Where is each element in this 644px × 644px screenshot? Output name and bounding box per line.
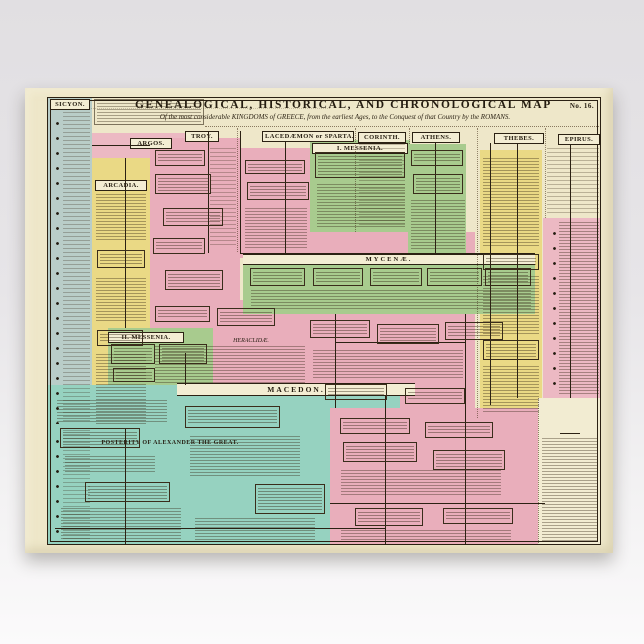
entry-box [153, 238, 205, 254]
macedon-texture [61, 508, 181, 540]
entry-box [185, 406, 280, 428]
arcadia-texture [96, 194, 146, 242]
epochas-paragraph-texture [542, 438, 598, 541]
epochas-divider [560, 433, 580, 434]
column-divider [409, 128, 410, 144]
entry-box [411, 150, 463, 166]
center-texture [313, 350, 463, 378]
title-divider [205, 126, 599, 127]
epirus-texture [559, 222, 599, 394]
entry-box [97, 250, 145, 268]
section-header-troy: TROY. [185, 131, 219, 142]
connector-line [92, 145, 150, 146]
section-header-sicyon: SICYON. [50, 99, 90, 110]
thebes-texture [483, 276, 539, 334]
entry-box [370, 268, 422, 286]
section-header-thebes: THEBES. [494, 133, 544, 144]
macedon-texture [57, 400, 167, 422]
entry-box [427, 268, 482, 286]
entry-box [425, 422, 493, 438]
sicyon-timeline-texture [63, 112, 90, 424]
entry-box [159, 344, 207, 364]
entry-box [340, 418, 410, 434]
label-heraclidae: HERACLIDÆ. [221, 338, 281, 345]
entry-box [155, 306, 210, 322]
section-header-argos: ARGOS. [130, 138, 172, 149]
macedon-texture [65, 456, 155, 474]
sicyon-timeline-dots [50, 112, 62, 424]
entry-box [405, 388, 465, 404]
macedon-texture [190, 436, 300, 476]
antique-chart-poster: GENEALOGICAL, HISTORICAL, AND CHRONOLOGI… [25, 88, 613, 553]
entry-box [247, 182, 309, 200]
section-header-epirus: EPIRUS. [558, 134, 600, 145]
entry-box [155, 150, 205, 166]
plate-number: No. 16. [561, 100, 603, 113]
epochas-title: EPOCHAS [538, 406, 644, 415]
entry-box [355, 508, 423, 526]
entry-box [60, 428, 140, 448]
entry-box [377, 324, 439, 344]
epirus-timeline-dots [547, 222, 557, 394]
macedon-texture [195, 518, 315, 540]
entry-box [245, 160, 305, 174]
entry-box [155, 174, 211, 194]
entry-box [85, 482, 170, 502]
connector-line [240, 131, 241, 254]
troy-column-texture [210, 148, 236, 248]
successors-texture [341, 530, 511, 542]
entry-box [250, 268, 305, 286]
entry-box [313, 268, 363, 286]
entry-box [433, 450, 505, 470]
entry-box [111, 344, 155, 364]
section-header-athens: ATHENS. [412, 132, 460, 143]
section-header-lacedaemon: LACEDÆMON or SPARTA. [262, 131, 354, 142]
entry-box [217, 308, 275, 326]
arcadia-texture [96, 278, 146, 322]
athens-texture [411, 200, 465, 250]
thebes-texture [483, 158, 539, 248]
thebes-texture [483, 366, 539, 414]
entry-box [325, 384, 387, 400]
entry-box [483, 254, 539, 270]
column-divider [237, 128, 238, 252]
epochas-subtitle: HISTORY OF GREECE. [538, 422, 644, 431]
epirus-upper-texture [547, 148, 599, 214]
entry-box [165, 270, 223, 290]
epochas-of-the: of the [538, 415, 644, 422]
sparta-texture [245, 208, 307, 250]
section-header-arcadia: ARCADIA. [95, 180, 147, 191]
column-divider [545, 128, 546, 218]
entry-box [443, 508, 513, 524]
entry-box [413, 174, 463, 194]
successors-texture [341, 470, 501, 496]
legend-note-box [94, 99, 204, 125]
entry-box [113, 368, 155, 382]
corinth-texture [359, 144, 405, 228]
entry-box [255, 484, 325, 514]
entry-box [483, 340, 539, 360]
entry-box [343, 442, 417, 462]
connector-line [330, 503, 545, 504]
section-header-corinth: CORINTH. [358, 132, 406, 143]
entry-box [310, 320, 370, 338]
